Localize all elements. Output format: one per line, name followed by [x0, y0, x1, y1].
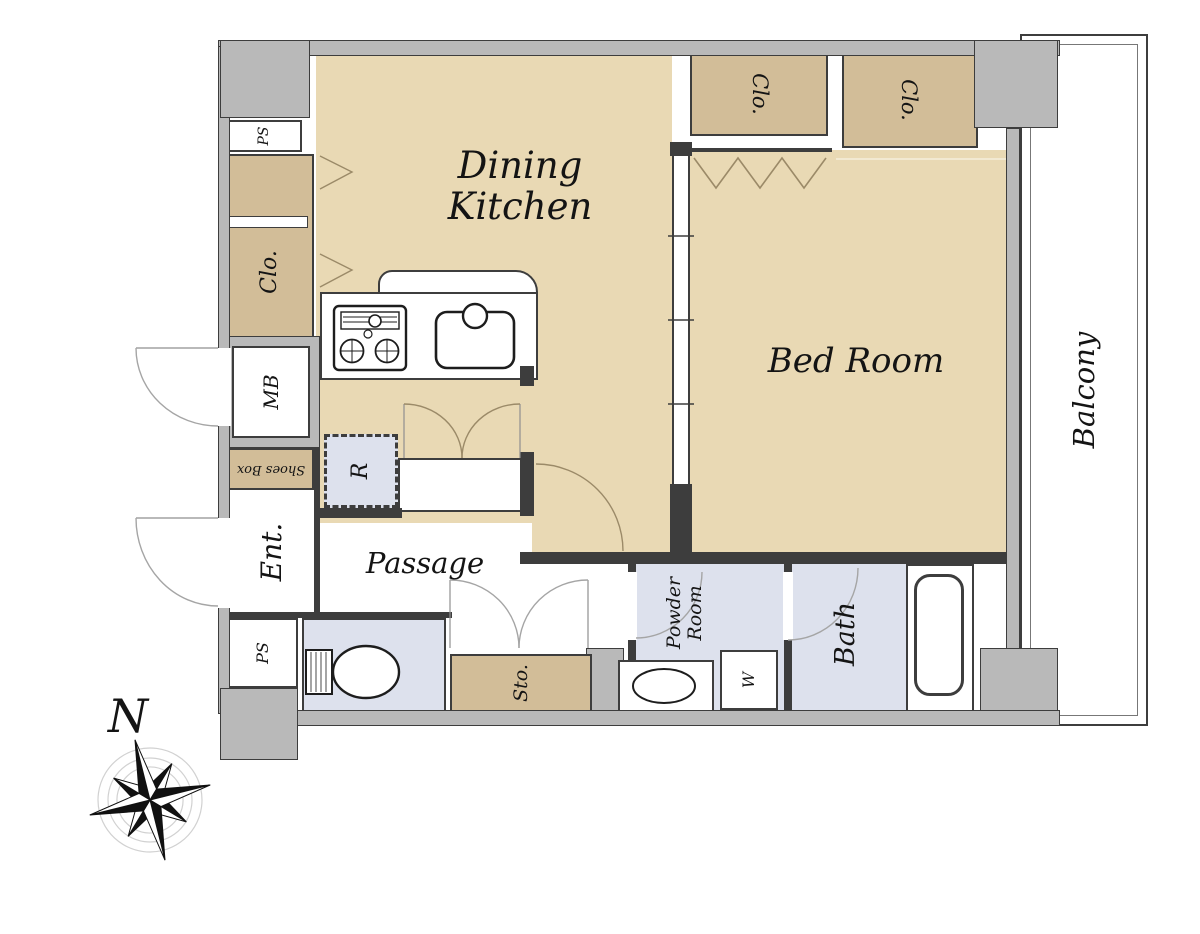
top-wall — [218, 40, 1060, 56]
closet-track-line — [688, 148, 832, 152]
closet-left-label: Clo. — [250, 232, 290, 312]
closet-top-left-label: Clo. — [740, 59, 778, 129]
partition-top-stub — [670, 142, 692, 156]
compass-rose-icon — [75, 725, 225, 875]
powder-room-line1: Powder — [664, 577, 685, 649]
pipe-space-top-label: PS — [250, 116, 280, 156]
compass-north-label: N — [100, 690, 156, 742]
entrance-right-wall — [314, 448, 320, 620]
sliding-partition — [672, 150, 690, 484]
closet-left-shelf — [228, 216, 308, 228]
passage-wall-stub — [520, 452, 534, 516]
passage-label: Passage — [340, 544, 510, 584]
closet-top-right-label: Clo. — [889, 65, 927, 135]
bedroom-south-wall — [520, 552, 1016, 564]
pillar-bottom-left — [220, 688, 298, 760]
pillar-top-left — [220, 40, 310, 118]
bath-door-gap — [783, 572, 793, 640]
shoes-box-label: Shoes Box — [231, 456, 311, 482]
bath-label: Bath — [826, 589, 866, 679]
passage-south-wall — [226, 612, 452, 618]
meter-box-door-gap — [217, 348, 231, 426]
pillar-top-right — [974, 40, 1058, 128]
pipe-space-bottom-label: PS — [247, 631, 279, 675]
entrance-door-gap — [217, 518, 231, 608]
bathtub — [914, 574, 964, 696]
entrance-label: Ent. — [250, 507, 294, 597]
balcony-label: Balcony — [1065, 310, 1105, 470]
kitchen-cabinet — [398, 458, 522, 512]
kitchen-counter — [320, 292, 538, 380]
bedroom-closet-front-line — [836, 158, 1008, 192]
washing-machine-label: W — [731, 658, 767, 702]
powder-room-label: Powder Room — [662, 543, 708, 683]
dining-kitchen-line1: Dining — [458, 146, 583, 187]
floor-plan: Dining Kitchen Bed Room Balcony Passage … — [0, 0, 1200, 934]
storage-label: Sto. — [501, 648, 541, 718]
toilet-room — [302, 618, 446, 712]
counter-end-stub — [520, 366, 534, 386]
dining-kitchen-line2: Kitchen — [448, 187, 593, 228]
meter-box-label: MB — [251, 367, 291, 417]
powder-room-line2: Room — [685, 585, 706, 640]
powder-door-gap — [627, 572, 637, 640]
refrigerator-label: R — [341, 446, 381, 496]
dk-corridor-floor — [532, 380, 672, 558]
bottom-wall — [226, 710, 1060, 726]
kitchen-passage-wall — [316, 508, 402, 518]
bed-room-label: Bed Room — [756, 340, 956, 384]
dining-kitchen-label: Dining Kitchen — [380, 132, 660, 242]
right-window-wall — [1006, 128, 1020, 652]
